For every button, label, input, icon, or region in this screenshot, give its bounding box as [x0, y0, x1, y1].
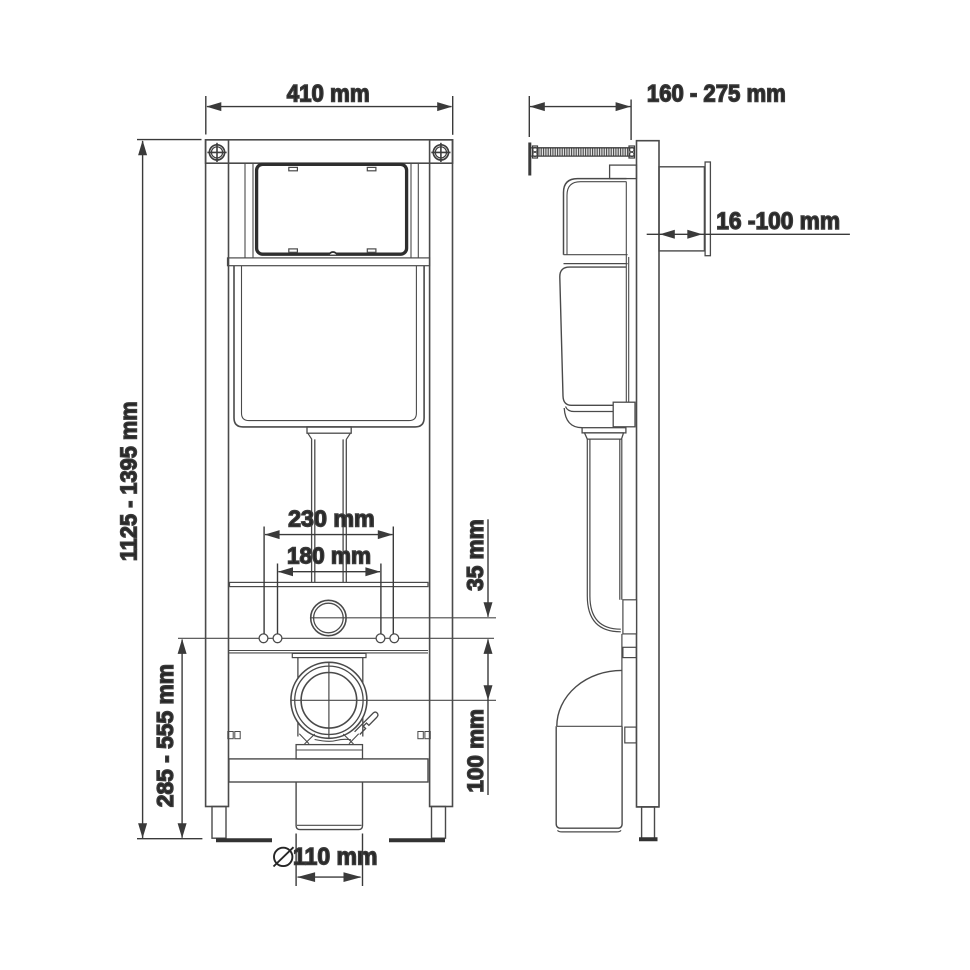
- svg-text:230 mm: 230 mm: [288, 505, 375, 531]
- svg-text:1125 - 1395 mm: 1125 - 1395 mm: [116, 401, 142, 561]
- svg-text:160 - 275 mm: 160 - 275 mm: [647, 81, 786, 108]
- svg-text:110 mm: 110 mm: [293, 843, 378, 870]
- svg-text:285 - 555 mm: 285 - 555 mm: [152, 664, 178, 807]
- svg-text:35 mm: 35 mm: [462, 519, 488, 591]
- svg-text:16 -100 mm: 16 -100 mm: [716, 208, 840, 235]
- svg-text:180 mm: 180 mm: [287, 543, 371, 569]
- svg-text:100 mm: 100 mm: [463, 709, 488, 793]
- svg-text:410 mm: 410 mm: [287, 81, 370, 108]
